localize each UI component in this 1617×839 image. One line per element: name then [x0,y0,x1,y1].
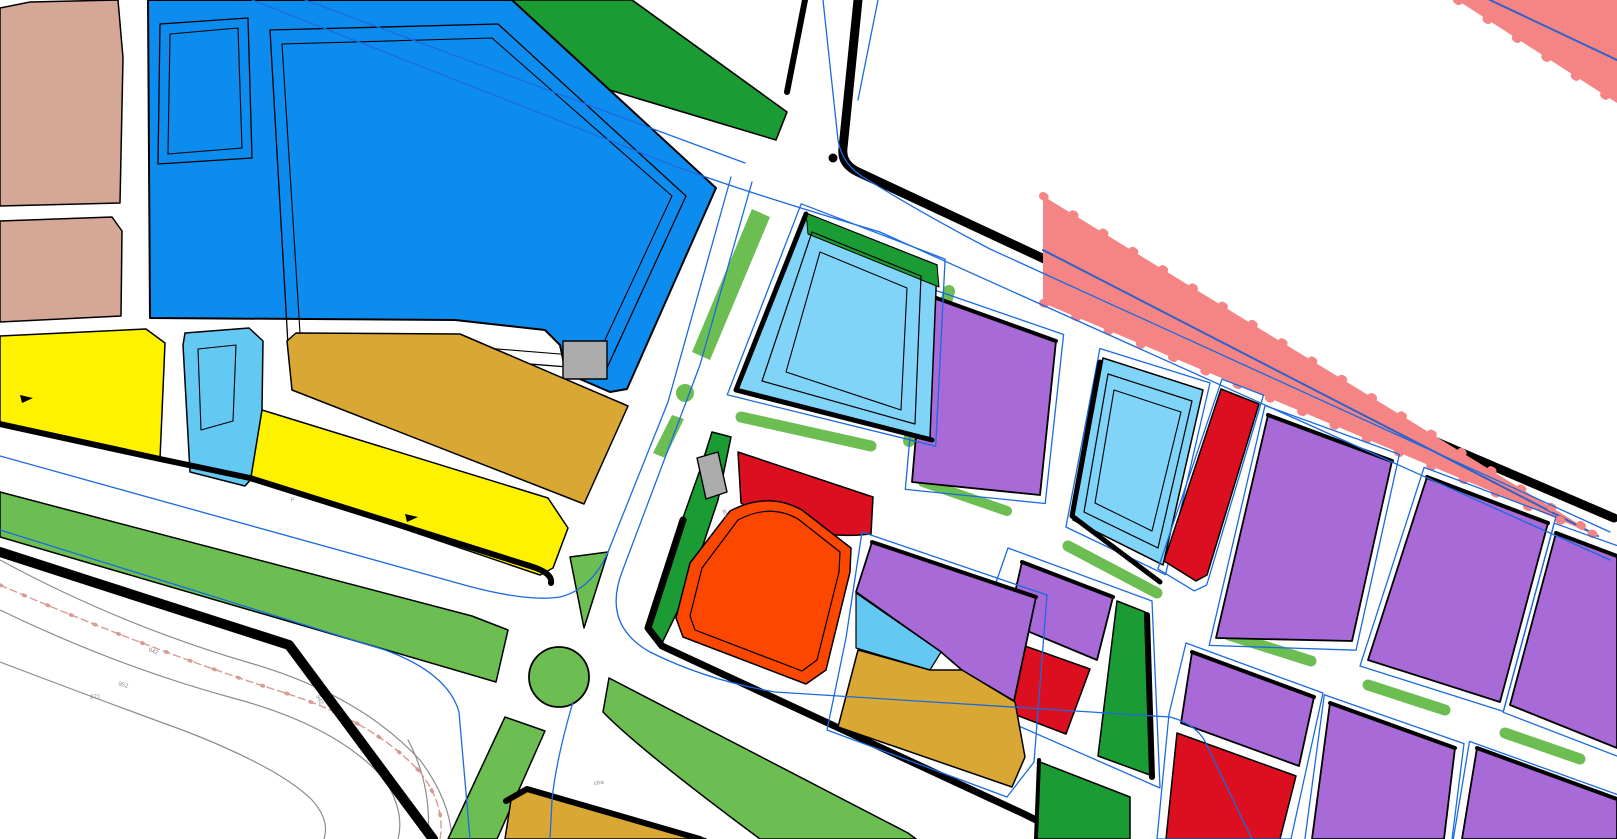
junction-dot [829,154,838,163]
block-b3-purple[interactable] [1462,748,1617,839]
map-annotation-label: 952 [117,681,129,690]
map-annotation-label: F [291,498,295,504]
building-gray-1[interactable] [563,341,607,379]
contour-line-2 [0,610,400,839]
railway-corridor-corner[interactable] [1457,0,1617,103]
parcel-tan-1[interactable] [0,0,123,206]
map-annotation-label: ctra [593,780,604,787]
boundary-west-of-north-road [787,0,805,92]
contour-line-3 [0,662,326,839]
triangle-darkgreen-south[interactable] [1037,762,1130,839]
zoning-map-viewport[interactable]: 942952972942ctraaccF [0,0,1617,839]
map-annotation-label: 972 [90,695,101,701]
parcel-skyblue-column[interactable] [183,328,263,486]
zoning-map-canvas[interactable]: 942952972942ctraaccF [0,0,1617,839]
parcel-tan-2[interactable] [0,217,122,322]
roundabout-island[interactable] [529,647,589,707]
